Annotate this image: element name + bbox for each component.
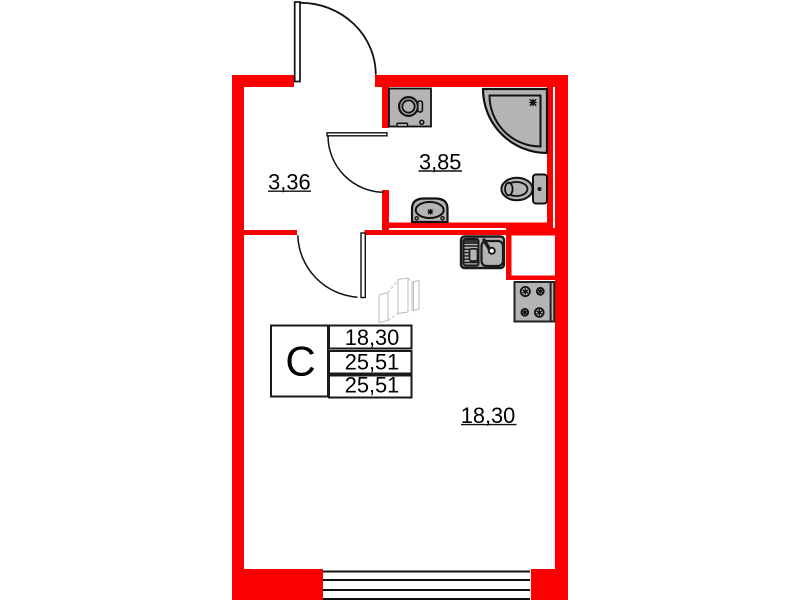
svg-text:С: С [285,337,315,384]
svg-text:25,51: 25,51 [345,349,400,374]
svg-text:25,51: 25,51 [345,373,400,398]
svg-text:18,30: 18,30 [345,325,400,350]
